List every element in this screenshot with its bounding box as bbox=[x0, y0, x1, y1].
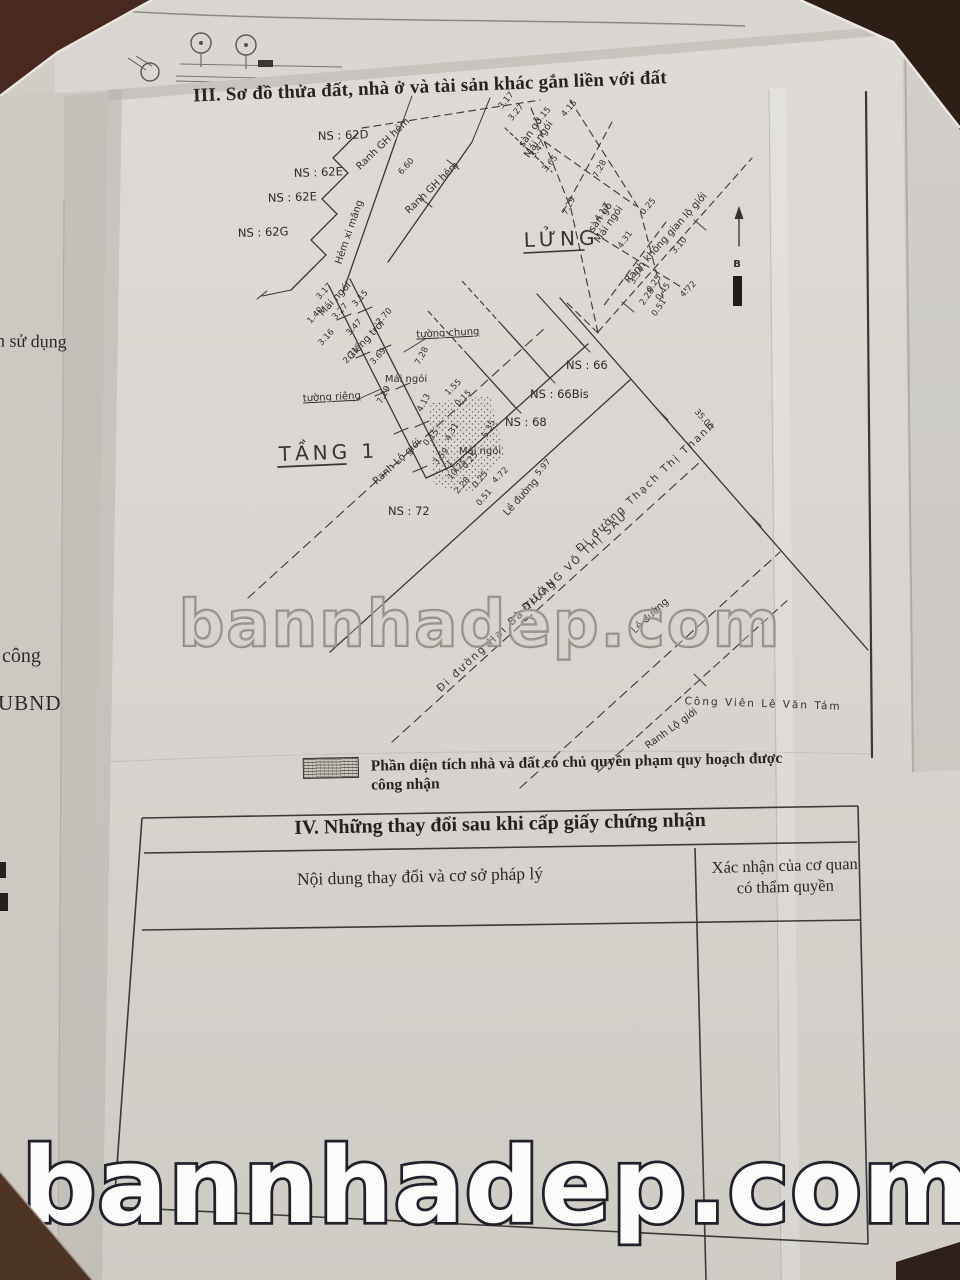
underlying-text-fragment: UBND bbox=[0, 690, 62, 716]
clipped-character-mark bbox=[0, 893, 8, 911]
label-tang1: TẦNG 1 bbox=[277, 438, 378, 466]
label-ns-66: NS : 66 bbox=[566, 358, 608, 372]
label-ns-62e-b: NS : 62E bbox=[268, 189, 317, 205]
label-ns-62e-a: NS : 62E bbox=[294, 164, 343, 180]
legend-hatch-swatch bbox=[303, 757, 359, 779]
section4-col2-header: Xác nhận của cơ quan có thẩm quyền bbox=[691, 853, 878, 899]
underlying-text-fragment: n sử dụng bbox=[0, 329, 67, 353]
watermark-bottom: bannhadep.com bbox=[22, 1125, 960, 1247]
label-ns-62g: NS : 62G bbox=[238, 224, 289, 240]
label-ns-72: NS : 72 bbox=[388, 504, 430, 518]
watermark-mid: bannhadep.com bbox=[179, 588, 782, 662]
document-photo-graphics: NS : 62D NS : 62E NS : 62E NS : 62G NS :… bbox=[0, 0, 960, 1280]
label-ns-66bis: NS : 66Bis bbox=[530, 387, 589, 401]
label-mai-ngoi-b: Mái ngói bbox=[385, 373, 427, 385]
photographed-land-certificate: NS : 62D NS : 62E NS : 62E NS : 62G NS :… bbox=[0, 0, 960, 1280]
label-ns-68: NS : 68 bbox=[505, 415, 547, 429]
label-north-b: B bbox=[733, 259, 741, 270]
label-mai-ngoi-c: Mái ngói bbox=[459, 445, 501, 457]
label-ns-62d: NS : 62D bbox=[318, 127, 369, 143]
clipped-character-mark bbox=[0, 862, 6, 878]
underlying-text-fragment: công bbox=[2, 644, 41, 669]
